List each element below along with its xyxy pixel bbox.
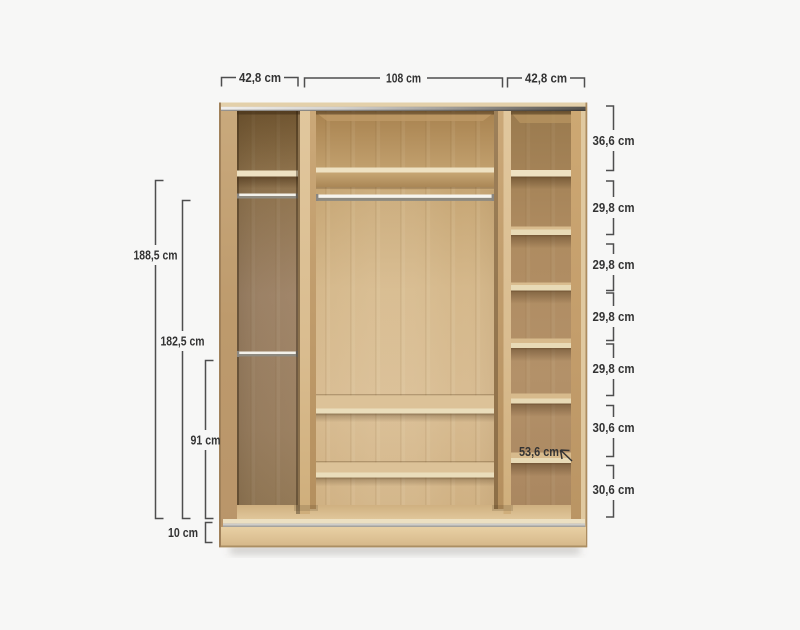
svg-text:91 cm: 91 cm <box>191 433 221 448</box>
svg-text:182,5 cm: 182,5 cm <box>161 334 205 349</box>
svg-text:36,6 cm: 36,6 cm <box>593 133 635 148</box>
svg-text:30,6 cm: 30,6 cm <box>593 482 635 497</box>
svg-text:188,5 cm: 188,5 cm <box>134 248 178 263</box>
svg-text:30,6 cm: 30,6 cm <box>593 420 635 435</box>
svg-text:10 cm: 10 cm <box>168 525 198 540</box>
svg-text:108 cm: 108 cm <box>386 71 421 86</box>
svg-text:53,6 cm: 53,6 cm <box>519 444 559 459</box>
svg-text:29,8 cm: 29,8 cm <box>593 200 635 215</box>
svg-text:29,8 cm: 29,8 cm <box>593 257 635 272</box>
svg-text:42,8 cm: 42,8 cm <box>239 70 281 85</box>
svg-text:29,8 cm: 29,8 cm <box>593 361 635 376</box>
svg-text:42,8 cm: 42,8 cm <box>525 71 567 86</box>
svg-text:29,8 cm: 29,8 cm <box>593 309 635 324</box>
